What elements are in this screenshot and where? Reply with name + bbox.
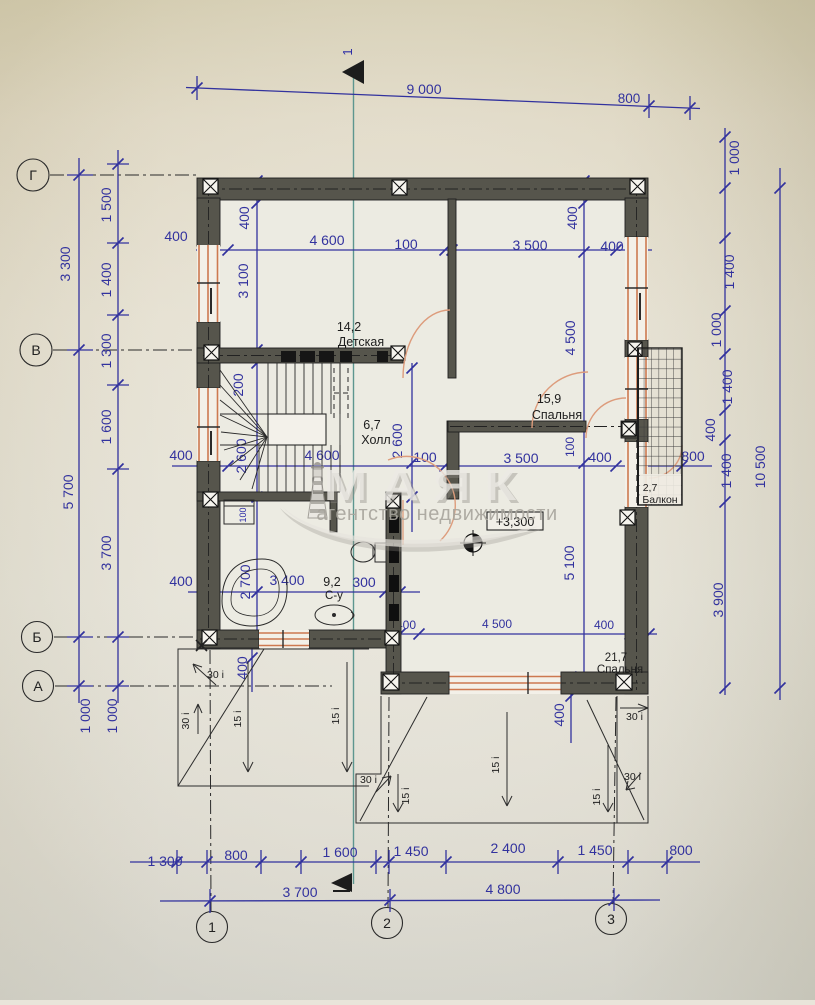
svg-text:3: 3 [607, 911, 615, 927]
svg-text:15 i: 15 i [232, 711, 244, 728]
svg-text:1 300: 1 300 [98, 333, 114, 368]
svg-text:4 600: 4 600 [309, 232, 344, 248]
svg-text:15 i: 15 i [490, 757, 502, 774]
svg-text:100: 100 [563, 437, 577, 457]
svg-text:15 i: 15 i [330, 708, 342, 725]
svg-text:21,7: 21,7 [605, 652, 627, 664]
svg-text:1 000: 1 000 [77, 698, 93, 733]
svg-text:400: 400 [236, 206, 252, 230]
svg-text:1 400: 1 400 [719, 369, 735, 404]
svg-text:Балкон: Балкон [642, 494, 677, 506]
svg-text:2 600: 2 600 [389, 423, 405, 458]
svg-text:1 000: 1 000 [708, 312, 724, 347]
svg-text:1 400: 1 400 [98, 262, 114, 297]
svg-text:4 500: 4 500 [482, 617, 512, 631]
svg-text:400: 400 [169, 573, 193, 589]
svg-text:300: 300 [352, 574, 376, 590]
svg-text:3 700: 3 700 [98, 535, 114, 570]
svg-text:800: 800 [681, 448, 705, 464]
svg-text:5 100: 5 100 [561, 545, 577, 580]
svg-text:2 700: 2 700 [237, 564, 253, 599]
svg-text:15 i: 15 i [591, 789, 603, 806]
svg-text:400: 400 [600, 238, 624, 254]
svg-text:1 450: 1 450 [393, 843, 428, 859]
svg-text:5 700: 5 700 [60, 474, 76, 509]
svg-text:100: 100 [238, 507, 248, 522]
svg-text:3 700: 3 700 [282, 884, 317, 900]
svg-text:1 400: 1 400 [721, 254, 737, 289]
svg-text:10 500: 10 500 [752, 445, 768, 488]
svg-text:1 000: 1 000 [726, 140, 742, 175]
svg-text:200: 200 [230, 373, 246, 397]
svg-text:4 800: 4 800 [485, 881, 520, 897]
svg-text:Холл: Холл [361, 433, 390, 447]
svg-text:1 600: 1 600 [322, 844, 357, 860]
svg-text:3 100: 3 100 [235, 263, 251, 298]
svg-text:2: 2 [383, 915, 391, 931]
svg-text:Спальня: Спальня [532, 408, 582, 422]
svg-text:30 i: 30 i [180, 713, 192, 730]
svg-text:400: 400 [551, 703, 567, 727]
svg-text:Детская: Детская [338, 335, 384, 349]
svg-text:2,7: 2,7 [643, 482, 658, 494]
svg-text:800: 800 [618, 91, 641, 106]
svg-text:100: 100 [394, 236, 418, 252]
svg-text:400: 400 [169, 447, 193, 463]
svg-text:800: 800 [224, 847, 248, 863]
svg-text:9,2: 9,2 [323, 575, 340, 589]
svg-text:1 400: 1 400 [718, 453, 734, 488]
svg-text:1 450: 1 450 [577, 842, 612, 858]
svg-text:2 400: 2 400 [490, 840, 525, 856]
svg-text:400: 400 [702, 418, 718, 442]
svg-text:1 500: 1 500 [98, 187, 114, 222]
svg-text:9 000: 9 000 [406, 81, 441, 97]
svg-text:400: 400 [594, 618, 614, 632]
svg-text:30 i: 30 i [207, 669, 224, 681]
svg-text:А: А [33, 678, 43, 694]
svg-text:30 i: 30 i [626, 711, 643, 723]
svg-text:800: 800 [669, 842, 693, 858]
svg-text:6,7: 6,7 [363, 418, 380, 432]
svg-text:Спальня: Спальня [597, 664, 643, 676]
svg-text:3 500: 3 500 [512, 237, 547, 253]
svg-text:400: 400 [164, 228, 188, 244]
svg-text:30 i: 30 i [624, 771, 641, 783]
svg-text:15 i: 15 i [400, 788, 412, 805]
svg-text:Б: Б [32, 629, 41, 645]
svg-text:4 500: 4 500 [562, 320, 578, 355]
svg-text:1 000: 1 000 [104, 698, 120, 733]
svg-text:3 300: 3 300 [57, 246, 73, 281]
svg-text:30 i: 30 i [360, 774, 377, 786]
svg-text:агентство недвижимости: агентство недвижимости [316, 503, 557, 525]
svg-text:15,9: 15,9 [537, 392, 561, 406]
svg-text:14,2: 14,2 [337, 320, 361, 334]
svg-text:1 600: 1 600 [98, 409, 114, 444]
svg-text:Г: Г [29, 167, 37, 183]
svg-text:1: 1 [340, 48, 355, 55]
svg-text:С-у: С-у [325, 590, 343, 602]
svg-text:В: В [31, 342, 40, 358]
svg-text:400: 400 [588, 449, 612, 465]
svg-text:3 900: 3 900 [710, 582, 726, 617]
svg-text:1 300: 1 300 [147, 853, 182, 869]
svg-text:1: 1 [208, 919, 216, 935]
svg-text:400: 400 [564, 206, 580, 230]
